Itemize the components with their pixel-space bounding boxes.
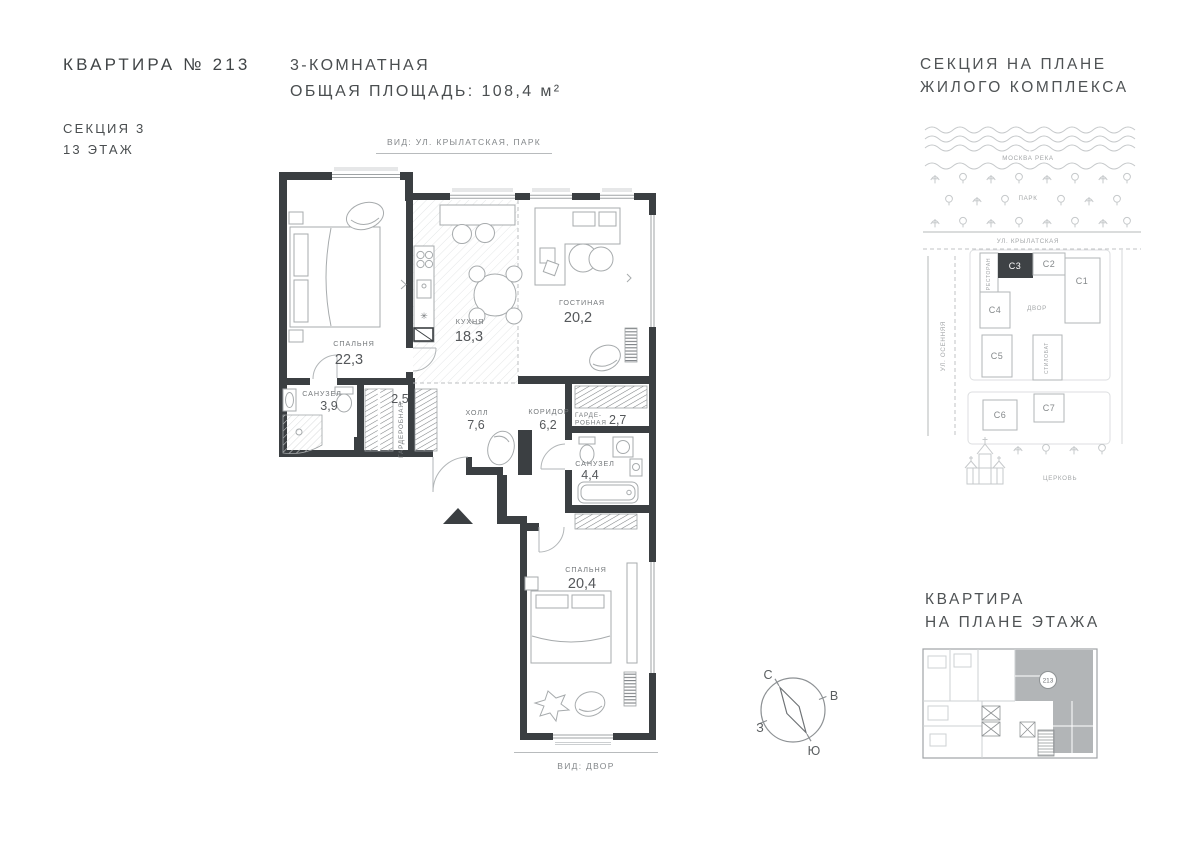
wardrobe2-name1: ГАРДЕ- bbox=[575, 412, 602, 419]
bedroom2-radiator bbox=[624, 672, 636, 706]
section-c7-label: C7 bbox=[1043, 403, 1056, 413]
building-c1 bbox=[1065, 258, 1100, 323]
bedroom1-area: 22,3 bbox=[335, 352, 363, 368]
compass-north: С bbox=[763, 668, 772, 682]
section-label: СЕКЦИЯ 3 bbox=[63, 118, 145, 139]
apartment-title: КВАРТИРА № 213 bbox=[63, 55, 251, 75]
window-living-side bbox=[649, 215, 656, 327]
living-radiator bbox=[625, 328, 637, 362]
section-c6-label: C6 bbox=[994, 410, 1007, 420]
stylobate-label: СТИЛОБАТ bbox=[1044, 342, 1050, 374]
section-c5-label: C5 bbox=[991, 351, 1004, 361]
view-top-label: ВИД: УЛ. КРЫЛАТСКАЯ, ПАРК bbox=[376, 137, 552, 154]
park-label: ПАРК bbox=[1018, 195, 1037, 202]
wardrobe2-name2: РОБНАЯ bbox=[575, 420, 607, 427]
entrance-arrow-icon bbox=[443, 508, 473, 524]
section-c4-label: C4 bbox=[989, 305, 1002, 315]
view-bottom-label: ВИД: ДВОР bbox=[514, 752, 658, 771]
section-floor-info: СЕКЦИЯ 3 13 ЭТАЖ bbox=[63, 118, 145, 160]
kitchen-area: 18,3 bbox=[455, 329, 483, 345]
bath1-area: 3,9 bbox=[320, 399, 337, 413]
complex-buildings: РЕСТОРАН C3 C2 C1 C4 ДВОР C5 СТИЛОБАТ C6… bbox=[968, 250, 1110, 444]
wardrobe1-name: ГАРДЕРОБНАЯ bbox=[398, 402, 405, 458]
floor-mini-title: КВАРТИРА НА ПЛАНЕ ЭТАЖА bbox=[925, 588, 1100, 634]
hall-area: 7,6 bbox=[467, 418, 484, 432]
corridor-area: 6,2 bbox=[539, 418, 556, 432]
living-area: 20,2 bbox=[564, 310, 592, 326]
compass-west: З bbox=[756, 721, 764, 735]
compass-icon: С В З Ю bbox=[753, 666, 845, 758]
floorplan-page: { "header": { "apartment": "КВАРТИРА № 2… bbox=[0, 0, 1200, 851]
window-bedroom1 bbox=[332, 168, 400, 180]
street-krylatskaya-label: УЛ. КРЫЛАТСКАЯ bbox=[997, 238, 1059, 245]
bedroom1-furniture bbox=[289, 198, 387, 342]
wardrobe2-area: 2,7 bbox=[609, 413, 626, 427]
street-osennyaya-label: УЛ. ОСЕННЯЯ bbox=[940, 321, 947, 371]
window-bedroom2-side bbox=[649, 562, 656, 673]
floor-mini-plan: 213 bbox=[920, 646, 1105, 771]
bath2-name: САНУЗЕЛ bbox=[575, 459, 615, 468]
compass-east: В bbox=[830, 689, 838, 703]
rooms-count-label: 3-КОМНАТНАЯ bbox=[290, 53, 562, 79]
window-living-2 bbox=[600, 189, 634, 200]
bedroom1-name: СПАЛЬНЯ bbox=[333, 339, 374, 348]
apartment-floorplan: ✳ bbox=[273, 158, 663, 748]
hall-name: ХОЛЛ bbox=[465, 408, 488, 417]
living-name: ГОСТИНАЯ bbox=[559, 298, 605, 307]
site-map: МОСКВА РЕКА ПАРК УЛ. КРЫЛАТСКАЯ УЛ. ОСЕН… bbox=[915, 118, 1150, 498]
total-area-label: ОБЩАЯ ПЛОЩАДЬ: 108,4 м² bbox=[290, 79, 562, 105]
section-c1-label: C1 bbox=[1076, 276, 1089, 286]
corridor-name: КОРИДОР bbox=[528, 407, 569, 416]
hall-pouf bbox=[484, 428, 518, 468]
bedroom2-area: 20,4 bbox=[568, 576, 596, 592]
bottom-trees bbox=[1014, 444, 1106, 454]
floor-label: 13 ЭТАЖ bbox=[63, 139, 145, 160]
church-label: ЦЕРКОВЬ bbox=[1043, 475, 1077, 482]
apartment-number-mini: 213 bbox=[1043, 678, 1054, 685]
window-kitchen bbox=[450, 189, 515, 200]
restaurant-label: РЕСТОРАН bbox=[986, 258, 992, 290]
bath2-area: 4,4 bbox=[581, 468, 598, 482]
room-labels: СПАЛЬНЯ 22,3 КУХНЯ 18,3 ГОСТИНАЯ 20,2 СА… bbox=[302, 298, 626, 592]
kitchen-symbol: ✳ bbox=[420, 311, 428, 321]
section-c2-label: C2 bbox=[1043, 259, 1056, 269]
courtyard-label: ДВОР bbox=[1027, 305, 1047, 312]
river-label: МОСКВА РЕКА bbox=[1002, 155, 1054, 162]
site-map-title: СЕКЦИЯ НА ПЛАНЕ ЖИЛОГО КОМПЛЕКСА bbox=[920, 53, 1129, 99]
apartment-specs: 3-КОМНАТНАЯ ОБЩАЯ ПЛОЩАДЬ: 108,4 м² bbox=[290, 53, 562, 105]
kitchen-name: КУХНЯ bbox=[456, 317, 485, 326]
section-c3-label: C3 bbox=[1009, 261, 1022, 271]
living-furniture bbox=[535, 208, 637, 376]
bath1-name: САНУЗЕЛ bbox=[302, 389, 342, 398]
window-bedroom2-bottom bbox=[553, 733, 613, 745]
bedroom2-name: СПАЛЬНЯ bbox=[565, 565, 606, 574]
window-living-1 bbox=[530, 189, 572, 200]
river-waves bbox=[925, 127, 1135, 169]
compass-south: Ю bbox=[808, 744, 821, 758]
